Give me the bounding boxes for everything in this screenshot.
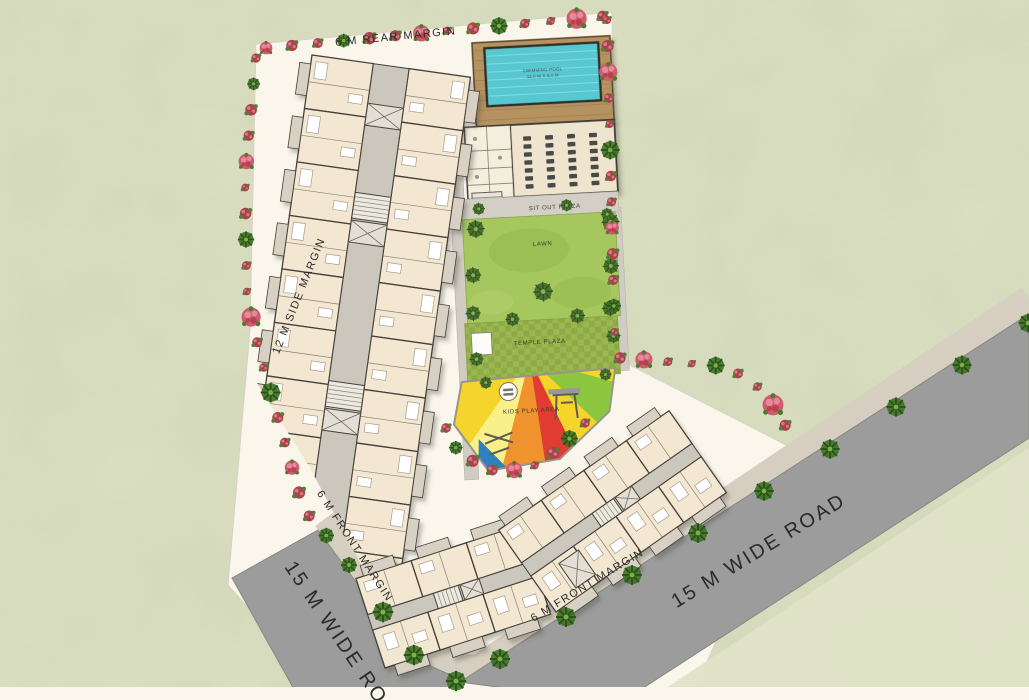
palm-tree-icon xyxy=(688,523,708,543)
palm-tree-icon xyxy=(373,602,394,623)
palm-tree-icon xyxy=(247,78,260,91)
chair-icon xyxy=(545,135,553,140)
site-plan-canvas: SWIMMING POOL 11.0 M X 5.0 M SIT O xyxy=(0,0,1029,700)
chair-icon xyxy=(546,151,554,156)
palm-tree-icon xyxy=(754,481,774,501)
chair-icon xyxy=(547,167,555,172)
chair-icon xyxy=(567,134,575,139)
temple xyxy=(471,332,492,355)
palm-tree-icon xyxy=(952,355,971,374)
palm-tree-icon xyxy=(261,383,281,403)
palm-tree-icon xyxy=(561,430,578,447)
palm-tree-icon xyxy=(490,17,507,34)
chair-icon xyxy=(591,181,599,186)
chair-icon xyxy=(569,174,577,179)
chair-icon xyxy=(525,168,533,173)
chair-icon xyxy=(523,144,531,149)
hall-annex xyxy=(464,125,514,199)
palm-tree-icon xyxy=(886,397,905,416)
palm-tree-icon xyxy=(449,441,462,454)
palm-tree-icon xyxy=(820,439,839,458)
palm-tree-icon xyxy=(238,231,254,247)
chair-icon xyxy=(591,165,599,170)
chair-icon xyxy=(546,159,554,164)
chair-icon xyxy=(547,175,555,180)
palm-tree-icon xyxy=(556,607,576,627)
palm-tree-icon xyxy=(490,649,510,669)
palm-tree-icon xyxy=(404,645,424,665)
chair-icon xyxy=(525,184,533,189)
palm-tree-icon xyxy=(707,357,725,375)
chair-icon xyxy=(568,158,576,163)
chair-icon xyxy=(524,160,532,165)
chair-icon xyxy=(568,150,576,155)
chair-icon xyxy=(589,133,597,138)
palm-tree-icon xyxy=(319,528,334,543)
lawn-label: LAWN xyxy=(533,241,553,248)
palm-tree-icon xyxy=(601,141,620,160)
chair-icon xyxy=(590,157,598,162)
bottom-strip xyxy=(0,687,1029,700)
chair-icon xyxy=(547,183,555,188)
chair-icon xyxy=(523,136,531,141)
pool-deck: SWIMMING POOL 11.0 M X 5.0 M xyxy=(472,36,614,127)
chair-icon xyxy=(591,173,599,178)
play-pad xyxy=(499,382,518,401)
palm-tree-icon xyxy=(446,671,466,691)
chair-icon xyxy=(545,143,553,148)
palm-tree-icon xyxy=(607,299,621,313)
chair-icon xyxy=(567,142,575,147)
chair-icon xyxy=(589,141,597,146)
chair-icon xyxy=(525,176,533,181)
palm-tree-icon xyxy=(341,557,357,573)
chair-icon xyxy=(569,166,577,171)
chair-icon xyxy=(569,182,577,187)
site-master-plan: SWIMMING POOL 11.0 M X 5.0 M SIT O xyxy=(0,0,1029,700)
chair-icon xyxy=(524,152,532,157)
chair-icon xyxy=(590,149,598,154)
